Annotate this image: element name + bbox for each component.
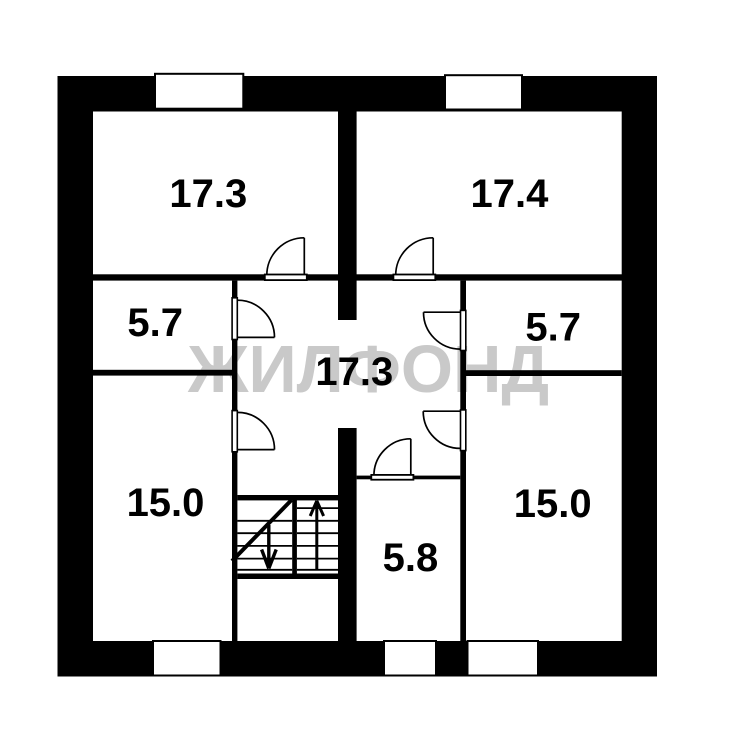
svg-text:5.8: 5.8 — [383, 536, 439, 580]
svg-text:15.0: 15.0 — [514, 482, 592, 526]
svg-text:17.3: 17.3 — [315, 350, 393, 394]
svg-text:17.4: 17.4 — [470, 172, 549, 216]
svg-text:5.7: 5.7 — [127, 301, 183, 345]
svg-text:17.3: 17.3 — [169, 172, 247, 216]
svg-text:15.0: 15.0 — [127, 481, 205, 525]
svg-text:5.7: 5.7 — [525, 306, 581, 350]
